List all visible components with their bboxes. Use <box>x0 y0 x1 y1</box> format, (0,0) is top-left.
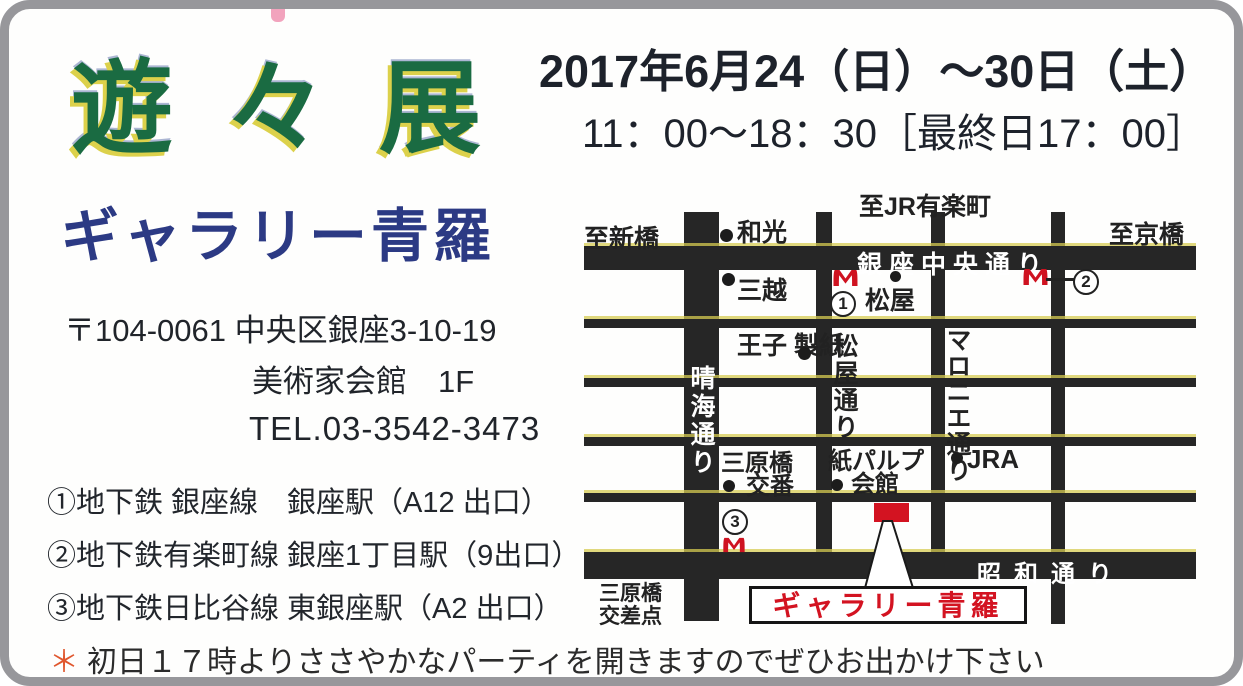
location-dot-icon <box>951 452 963 464</box>
metro-icon <box>832 269 859 287</box>
station-access-item-3: ③地下鉄日比谷線 東銀座駅（A2 出口） <box>47 585 563 627</box>
road-cross-2 <box>584 378 1196 387</box>
location-dot-icon <box>723 480 735 492</box>
exit-number-badge-3: 3 <box>722 509 748 535</box>
exhibition-hours: 11：00～18：30［最終日17：00］ <box>582 101 1206 159</box>
building-floor: 美術家会館 1F <box>252 356 474 401</box>
exhibition-card: 遊々展 2017年6月24（日）～30日（土） 11：00～18：30［最終日1… <box>0 0 1243 686</box>
road-cross-1 <box>584 319 1196 328</box>
road-cross-3 <box>584 437 1196 446</box>
landmark-koban-line2: 交番 <box>746 472 794 501</box>
exit-number-badge-2: 2 <box>1073 269 1099 295</box>
phone-number: TEL.03-3542-3473 <box>249 410 540 448</box>
landmark-pulp-line2: 会館 <box>851 470 899 499</box>
location-dot-icon <box>890 271 901 282</box>
landmark-jra: JRA <box>967 445 1019 474</box>
landmark-wako: 和光 <box>737 219 787 248</box>
direction-shimbashi: 至新橋 <box>584 219 659 255</box>
gallery-callout: ギャラリー青羅 <box>749 586 1027 624</box>
direction-jr-yurakucho: 至JR有楽町 <box>859 187 991 223</box>
location-dot-icon <box>798 347 811 360</box>
location-dot-icon <box>720 229 733 242</box>
exit-number-badge-1: 1 <box>830 291 856 317</box>
location-dot-icon <box>722 273 735 286</box>
metro-icon <box>1022 268 1049 286</box>
callout-line <box>1046 278 1076 281</box>
asterisk-icon: ＊ <box>49 646 87 679</box>
street-label-ginza-chuo: 銀座中央通り <box>857 245 1049 281</box>
gallery-name: ギャラリー青羅 <box>61 189 495 273</box>
location-dot-icon <box>831 479 843 491</box>
metro-icon <box>722 537 746 553</box>
station-access-item-1: ①地下鉄 銀座線 銀座駅（A12 出口） <box>47 479 550 521</box>
landmark-oji-paper: 王子 製紙 <box>737 332 844 361</box>
street-label-showa: 昭和通り <box>977 554 1125 589</box>
access-map: 銀座中央通り 昭和通り 晴海通り 松屋通り マロニエ通り 至JR有楽町 至新橋 … <box>579 177 1199 637</box>
direction-kyobashi: 至京橋 <box>1109 215 1184 251</box>
landmark-mitsukoshi: 三越 <box>737 277 787 306</box>
postal-address: 〒104-0061 中央区銀座3-10-19 <box>64 305 496 350</box>
page-title: 遊々展 <box>71 27 533 174</box>
exhibition-dates: 2017年6月24（日）～30日（土） <box>539 35 1214 100</box>
party-note: ＊初日１７時よりささやかなパーティを開きますのでぜひお出かけ下さい <box>49 637 1045 681</box>
station-access-item-2: ②地下鉄有楽町線 銀座1丁目駅（9出口） <box>47 532 580 574</box>
street-label-harumi: 晴海通り <box>685 365 719 477</box>
landmark-matsuya-store: 松屋 <box>865 287 915 316</box>
scan-artifact <box>271 9 285 22</box>
intersection-label: 三原橋 交差点 <box>599 582 662 628</box>
gallery-pointer <box>862 520 918 589</box>
party-note-text: 初日１７時よりささやかなパーティを開きますのでぜひお出かけ下さい <box>87 646 1045 679</box>
